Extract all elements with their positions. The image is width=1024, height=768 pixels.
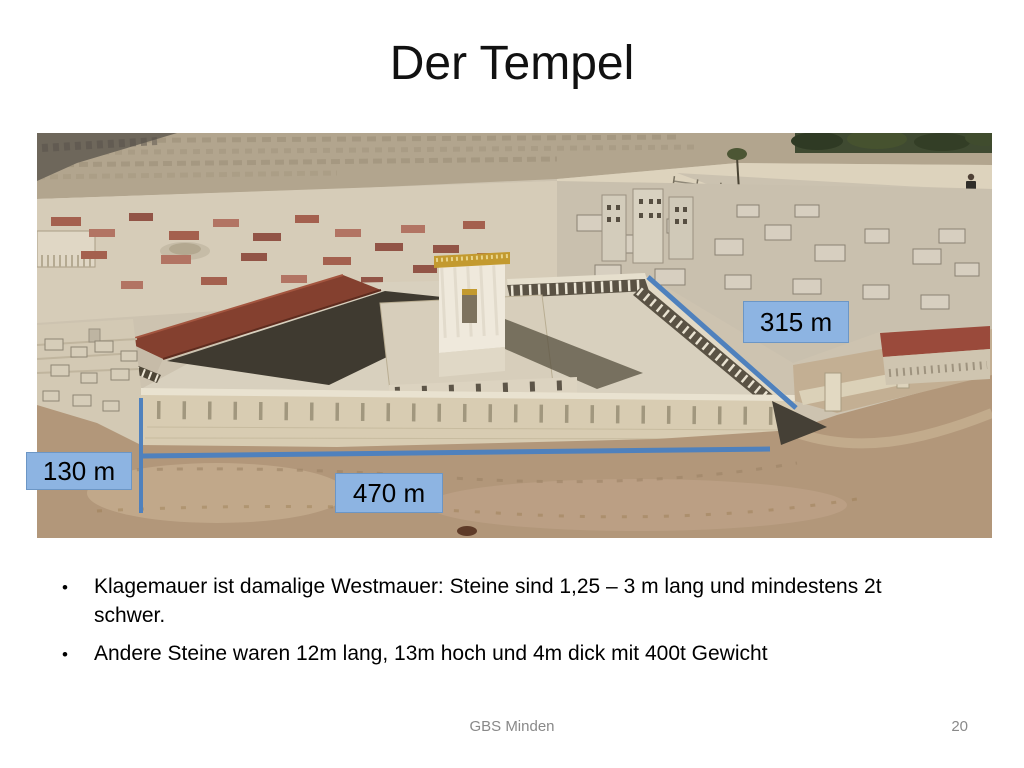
- measurement-value: 130 m: [43, 456, 115, 487]
- slide: Der Tempel: [0, 0, 1024, 768]
- measurement-label-470m: 470 m: [335, 473, 443, 513]
- bullet-item-2: • Andere Steine waren 12m lang, 13m hoch…: [52, 639, 927, 668]
- bullet-marker: •: [62, 573, 68, 602]
- bullet-text: Klagemauer ist damalige Westmauer: Stein…: [94, 575, 882, 627]
- measurement-value: 315 m: [760, 307, 832, 338]
- bullet-list: • Klagemauer ist damalige Westmauer: Ste…: [52, 572, 927, 677]
- measurement-value: 470 m: [353, 478, 425, 509]
- footer-text: GBS Minden: [0, 718, 1024, 735]
- measurement-label-315m: 315 m: [743, 301, 849, 343]
- slide-title: Der Tempel: [0, 36, 1024, 91]
- trees: [791, 133, 992, 153]
- page-number: 20: [951, 718, 968, 735]
- measurement-label-130m: 130 m: [26, 452, 132, 490]
- temple-model-figure: 315 m 130 m 470 m: [37, 133, 992, 538]
- bullet-marker: •: [62, 640, 68, 669]
- bullet-item-1: • Klagemauer ist damalige Westmauer: Ste…: [52, 572, 927, 630]
- antonia-towers: [602, 189, 693, 263]
- bullet-text: Andere Steine waren 12m lang, 13m hoch u…: [94, 642, 768, 665]
